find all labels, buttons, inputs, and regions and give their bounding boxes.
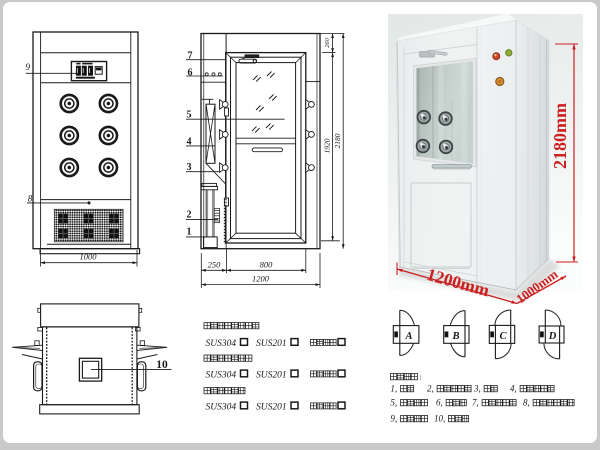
svg-text:1,: 1,: [390, 384, 397, 394]
svg-text:1000: 1000: [80, 252, 98, 262]
svg-text:10: 10: [156, 359, 168, 371]
svg-text:8,: 8,: [523, 398, 530, 408]
svg-text:6: 6: [188, 67, 193, 78]
svg-text:1920: 1920: [323, 138, 332, 153]
svg-text:2180mm: 2180mm: [550, 103, 570, 169]
svg-text:10,: 10,: [434, 414, 445, 424]
svg-text:2180: 2180: [333, 133, 342, 148]
svg-text:5: 5: [187, 109, 192, 120]
svg-text:6,: 6,: [436, 398, 443, 408]
svg-text:250: 250: [208, 260, 222, 270]
svg-text:A: A: [404, 331, 412, 342]
svg-text:260: 260: [324, 37, 331, 48]
svg-text:SUS201: SUS201: [256, 371, 287, 381]
svg-text:5,: 5,: [390, 398, 397, 408]
svg-text:2,: 2,: [427, 384, 434, 394]
svg-text:4,: 4,: [510, 384, 517, 394]
svg-text:8: 8: [28, 194, 33, 204]
svg-text:9: 9: [25, 62, 30, 72]
svg-text:3,: 3,: [473, 384, 481, 394]
svg-text:7,: 7,: [472, 398, 479, 408]
svg-text:800: 800: [260, 260, 274, 270]
svg-text:SUS201: SUS201: [256, 339, 287, 349]
svg-text:SUS304: SUS304: [206, 339, 237, 349]
svg-text:SUS304: SUS304: [206, 403, 237, 413]
svg-text:2: 2: [187, 210, 192, 221]
svg-text:C: C: [499, 331, 507, 342]
svg-text:B: B: [451, 331, 459, 342]
svg-text:1200: 1200: [252, 274, 270, 284]
svg-text::: :: [420, 373, 422, 382]
svg-text:SUS304: SUS304: [206, 371, 237, 381]
svg-text:SUS201: SUS201: [256, 403, 287, 413]
svg-text:9,: 9,: [390, 414, 397, 424]
svg-text:D: D: [548, 331, 557, 342]
svg-text:1: 1: [187, 227, 192, 238]
